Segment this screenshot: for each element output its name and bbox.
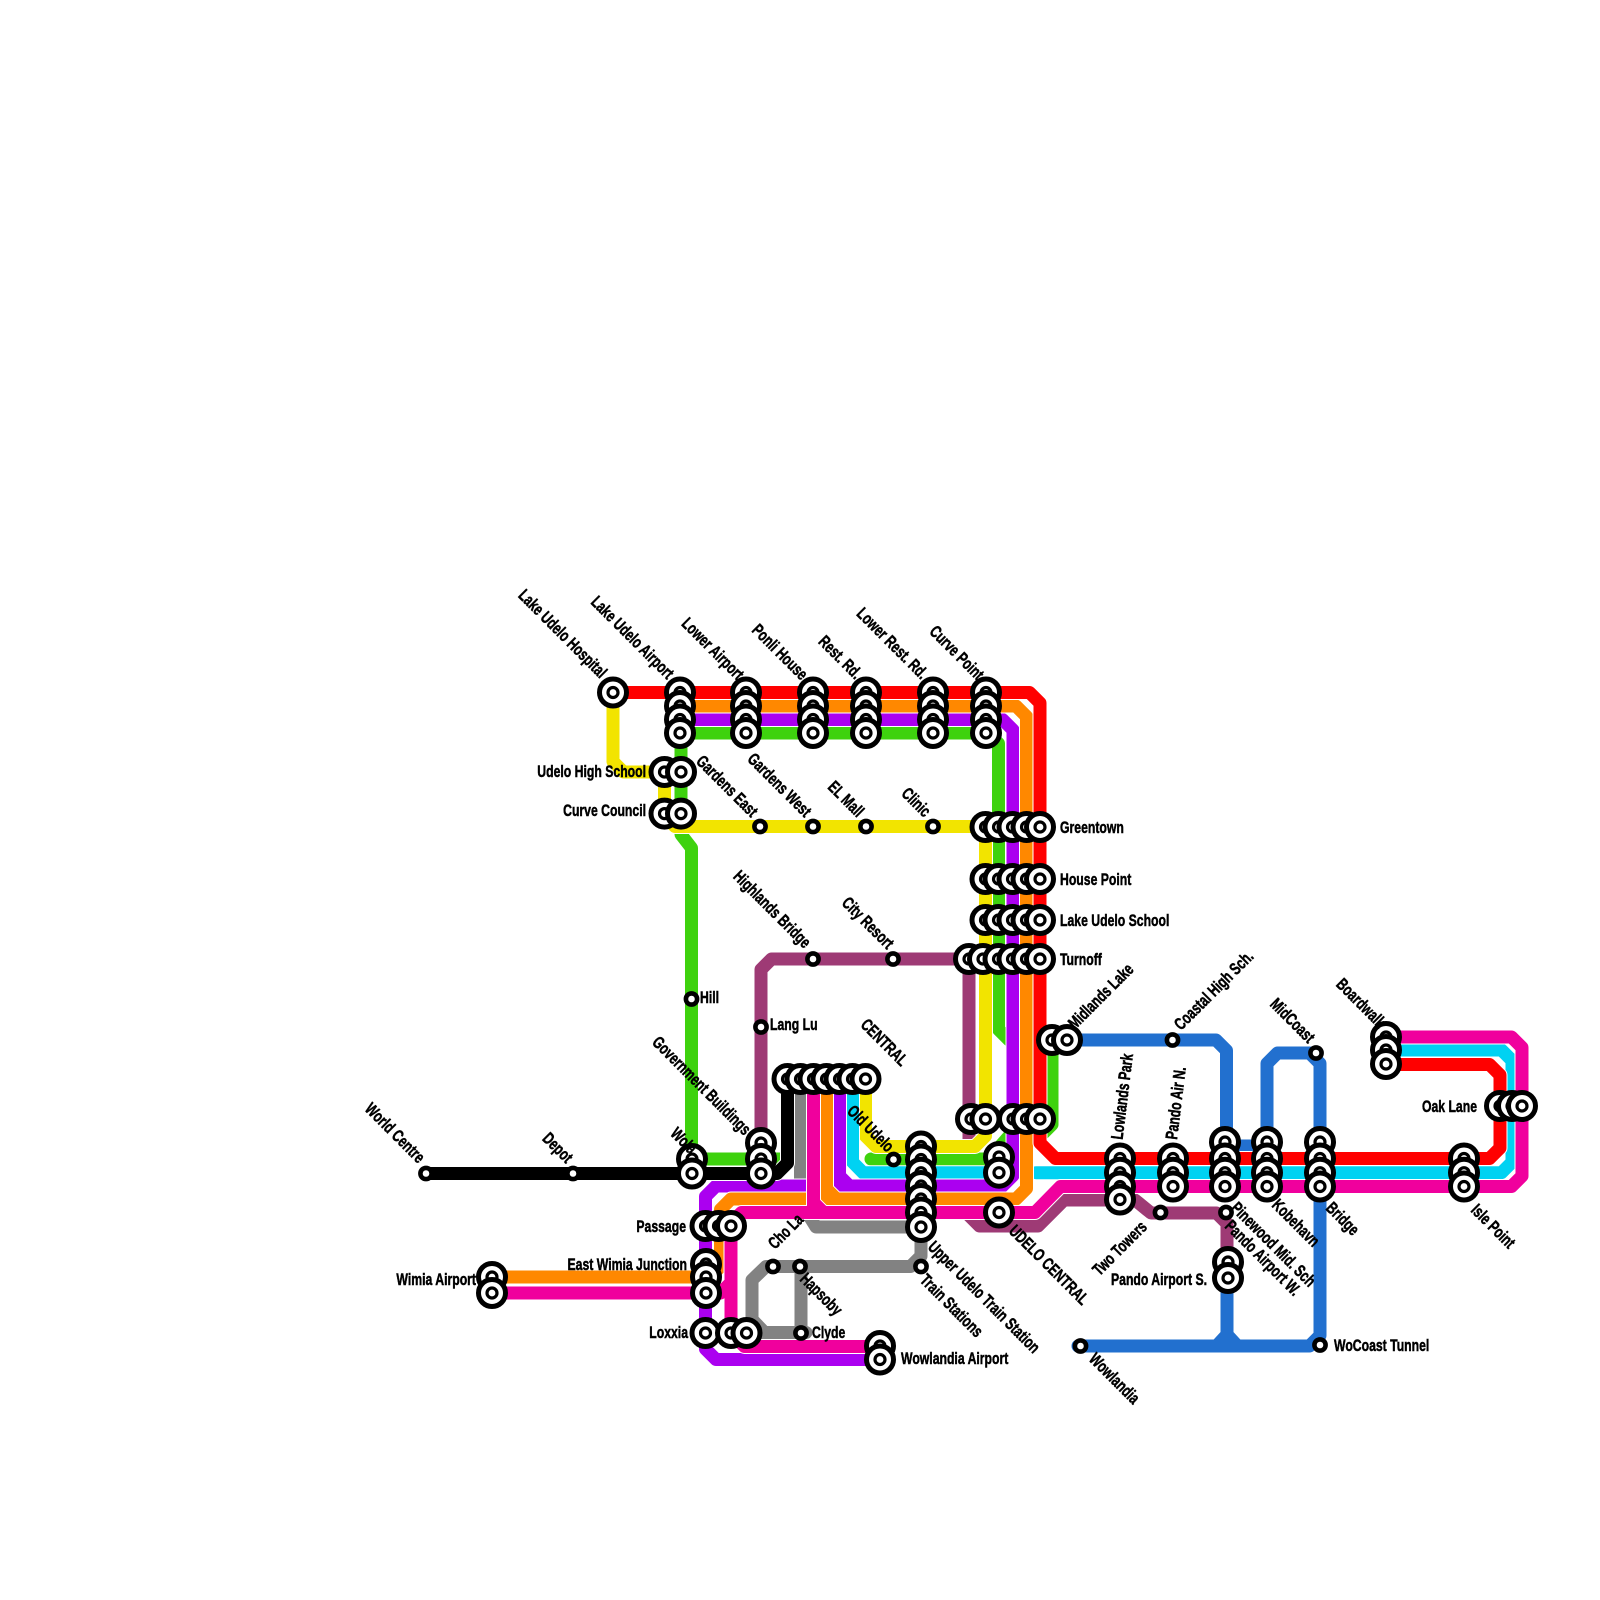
- svg-text:Turnoff: Turnoff: [1060, 951, 1102, 969]
- svg-text:Clyde: Clyde: [812, 1324, 845, 1342]
- svg-text:Wimia Airport: Wimia Airport: [396, 1271, 476, 1289]
- svg-text:Curve Council: Curve Council: [563, 802, 646, 820]
- svg-text:Lake Udelo School: Lake Udelo School: [1060, 912, 1169, 930]
- svg-text:Passage: Passage: [636, 1218, 686, 1236]
- svg-text:Wowlandia Airport: Wowlandia Airport: [901, 1350, 1008, 1368]
- svg-text:East Wimia Junction: East Wimia Junction: [568, 1256, 687, 1274]
- svg-text:WoCoast Tunnel: WoCoast Tunnel: [1334, 1337, 1429, 1355]
- svg-text:Pando Airport S.: Pando Airport S.: [1111, 1271, 1207, 1289]
- svg-text:Lang Lu: Lang Lu: [770, 1016, 818, 1034]
- svg-text:Loxxia: Loxxia: [649, 1324, 688, 1342]
- svg-text:Udelo High School: Udelo High School: [537, 763, 646, 781]
- svg-text:Greentown: Greentown: [1060, 819, 1124, 837]
- svg-text:House Point: House Point: [1060, 871, 1131, 889]
- svg-text:Hill: Hill: [700, 989, 719, 1007]
- svg-text:Oak Lane: Oak Lane: [1422, 1098, 1477, 1116]
